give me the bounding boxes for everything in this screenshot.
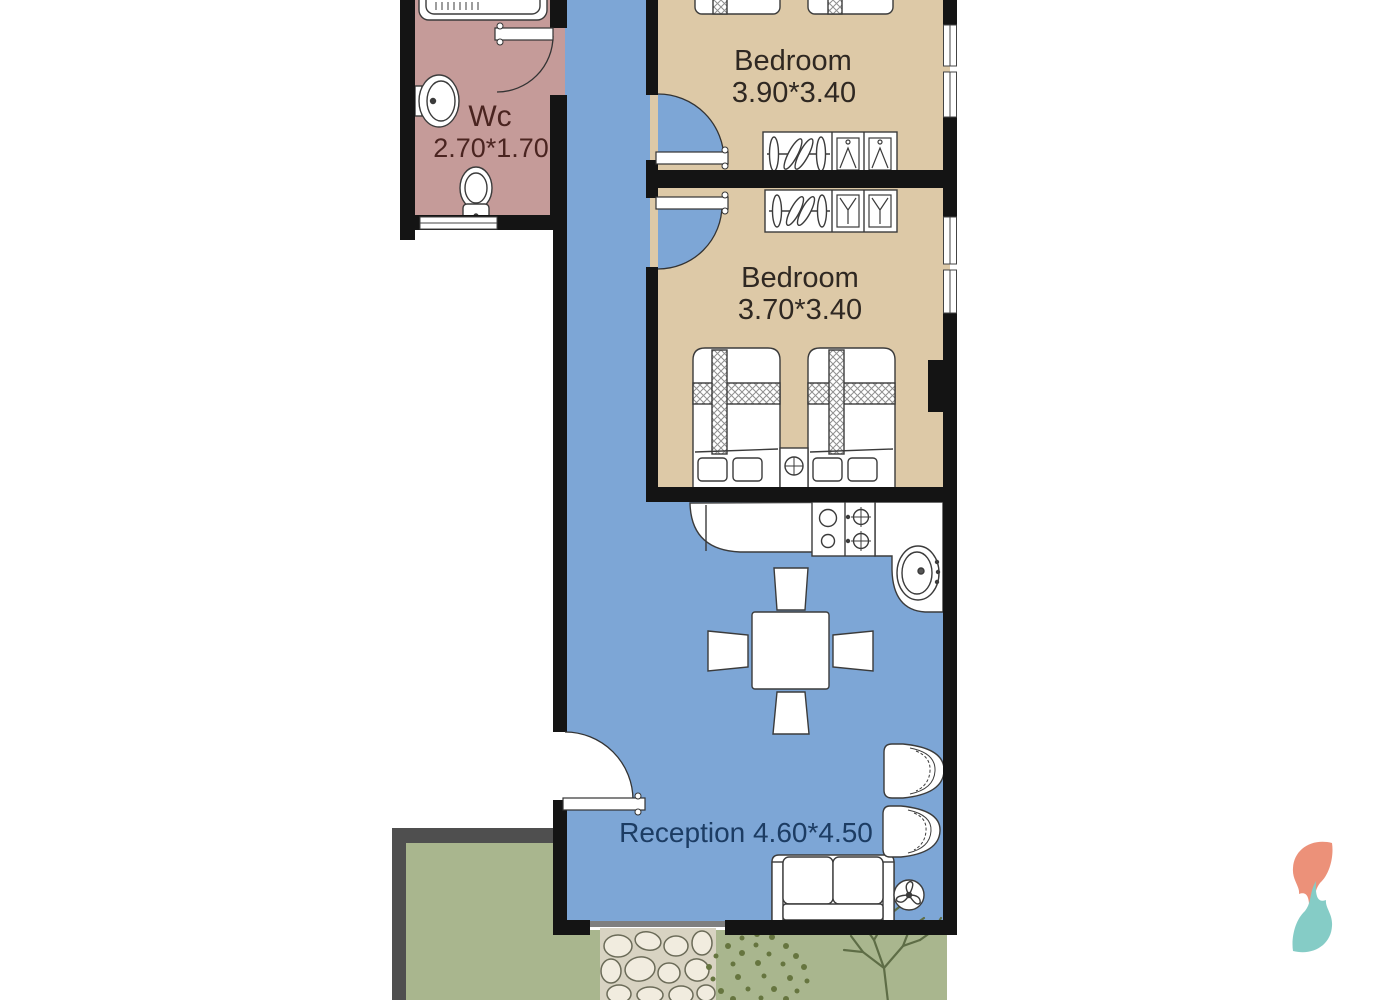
dining-chair-top: [774, 568, 808, 610]
bedroom2-bed-left: [693, 348, 780, 488]
logo: [1293, 842, 1333, 952]
sofa: [772, 855, 894, 922]
kitchen-sink: [897, 546, 940, 600]
floorplan-page: Wc 2.70*1.70 Bedroom 3.90*3.40 Bedroom 3…: [0, 0, 1400, 1000]
wall-bottom-right: [725, 920, 957, 935]
dining-chair-right: [833, 631, 873, 671]
bedroom1-wardrobe: [763, 132, 897, 176]
wall-bedroom-divider: [646, 170, 957, 188]
reception-label: Reception 4.60*4.50: [619, 817, 873, 848]
logo-teal-leaf: [1293, 881, 1333, 952]
wall-right-pilaster: [928, 360, 943, 412]
wall-wc-right: [550, 95, 567, 230]
wall-corridor-right-top: [646, 0, 658, 95]
dining-chair-left: [708, 631, 748, 671]
wall-right-1: [943, 0, 957, 25]
wall-right-3: [943, 313, 957, 935]
dining-table: [752, 612, 829, 689]
fan-table: [894, 880, 924, 910]
wall-corridor-left: [553, 228, 567, 732]
stone-path: [600, 928, 716, 1000]
wc-window: [420, 217, 497, 229]
wall-corridor-right-low: [646, 267, 658, 502]
bedroom2-label: Bedroom: [741, 262, 859, 294]
bathtub: [419, 0, 547, 20]
wall-right-2: [943, 117, 957, 217]
wall-bottom-left: [553, 920, 590, 935]
bedroom2-bed-right: [808, 348, 895, 488]
wc-dims: 2.70*1.70: [433, 133, 549, 163]
bedroom2-dims: 3.70*3.40: [738, 294, 862, 326]
stove: [812, 502, 875, 556]
bedroom1-dims: 3.90*3.40: [732, 77, 856, 109]
bedroom2-wardrobe: [765, 190, 897, 232]
garden-fence-top: [392, 828, 562, 843]
wc-label: Wc: [468, 100, 511, 133]
dining-chair-bottom: [773, 692, 809, 734]
nightstand: [780, 448, 808, 488]
floorplan-svg: Wc 2.70*1.70 Bedroom 3.90*3.40 Bedroom 3…: [0, 0, 1400, 1000]
wall-reception-left: [553, 800, 567, 935]
wall-wc-right-top: [550, 0, 567, 28]
threshold: [590, 921, 725, 927]
bedroom1-label: Bedroom: [734, 45, 852, 77]
garden-fence-left: [392, 828, 406, 1000]
wall-wc-left: [400, 0, 415, 240]
wall-kitchen-top: [646, 487, 957, 502]
